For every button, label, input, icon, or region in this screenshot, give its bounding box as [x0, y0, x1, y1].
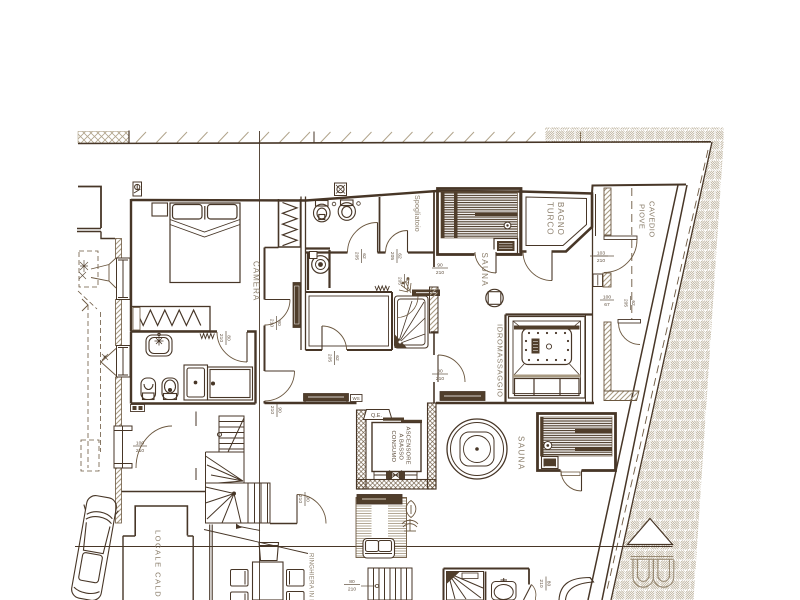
svg-text:103: 103	[597, 251, 605, 257]
svg-text:CAMERA: CAMERA	[252, 261, 261, 301]
svg-text:SAUNA: SAUNA	[480, 253, 489, 288]
svg-text:62: 62	[334, 355, 340, 361]
svg-text:80: 80	[546, 581, 552, 587]
svg-text:A BASSO: A BASSO	[398, 434, 404, 461]
svg-text:205: 205	[327, 354, 333, 362]
svg-text:67: 67	[604, 302, 610, 308]
svg-text:210: 210	[348, 587, 356, 593]
svg-text:LOCALE CALD: LOCALE CALD	[154, 530, 163, 598]
svg-text:80: 80	[276, 320, 282, 326]
svg-text:210: 210	[436, 376, 444, 382]
svg-text:90: 90	[277, 407, 283, 413]
svg-text:80: 80	[349, 579, 355, 585]
svg-text:80: 80	[226, 335, 232, 341]
svg-text:210: 210	[538, 579, 544, 587]
svg-text:205: 205	[389, 252, 395, 260]
svg-text:210: 210	[269, 319, 275, 327]
svg-text:210: 210	[436, 270, 444, 276]
svg-text:100: 100	[603, 295, 611, 301]
svg-text:Q.E.: Q.E.	[371, 413, 382, 419]
svg-text:TURCO: TURCO	[546, 202, 555, 235]
svg-text:210: 210	[218, 334, 224, 342]
svg-text:ASCENSORE: ASCENSORE	[405, 427, 411, 465]
svg-text:205: 205	[623, 299, 629, 307]
svg-text:210: 210	[597, 258, 605, 264]
svg-text:205: 205	[354, 252, 360, 260]
svg-text:BAGNO: BAGNO	[556, 202, 565, 236]
svg-text:205: 205	[397, 277, 403, 285]
svg-text:62: 62	[361, 253, 367, 259]
svg-text:210: 210	[269, 406, 275, 414]
svg-text:CONSUMO: CONSUMO	[390, 431, 396, 463]
svg-text:80: 80	[437, 369, 443, 375]
svg-text:210: 210	[297, 495, 303, 503]
svg-text:PIOVE: PIOVE	[638, 204, 647, 229]
svg-text:62: 62	[630, 300, 636, 306]
svg-text:62: 62	[397, 253, 403, 259]
svg-text:90: 90	[437, 263, 443, 269]
svg-text:RINGHIERA IN FE: RINGHIERA IN FE	[308, 553, 314, 600]
svg-text:90: 90	[305, 496, 311, 502]
svg-text:WS: WS	[353, 396, 360, 401]
svg-text:Spogliatoio: Spogliatoio	[413, 195, 420, 232]
svg-text:CAVEDIO: CAVEDIO	[648, 201, 657, 238]
svg-text:SAUNA: SAUNA	[517, 436, 526, 471]
svg-text:IDROMASSAGGIO: IDROMASSAGGIO	[496, 324, 505, 398]
